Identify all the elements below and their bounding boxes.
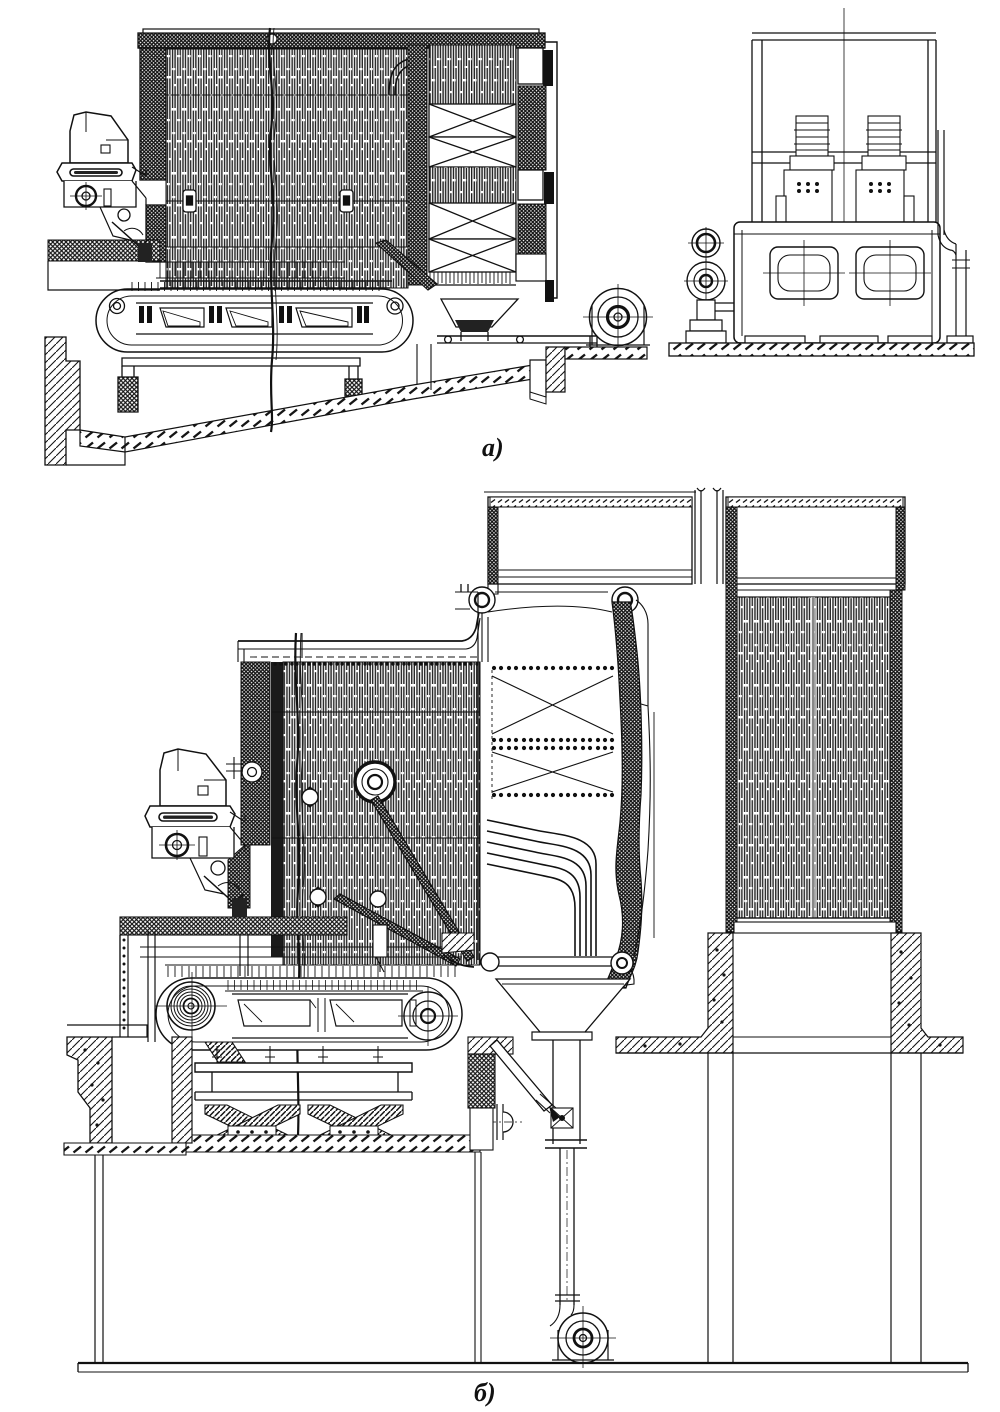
svg-text:б): б) (474, 1378, 496, 1407)
svg-text:а): а) (482, 433, 504, 462)
